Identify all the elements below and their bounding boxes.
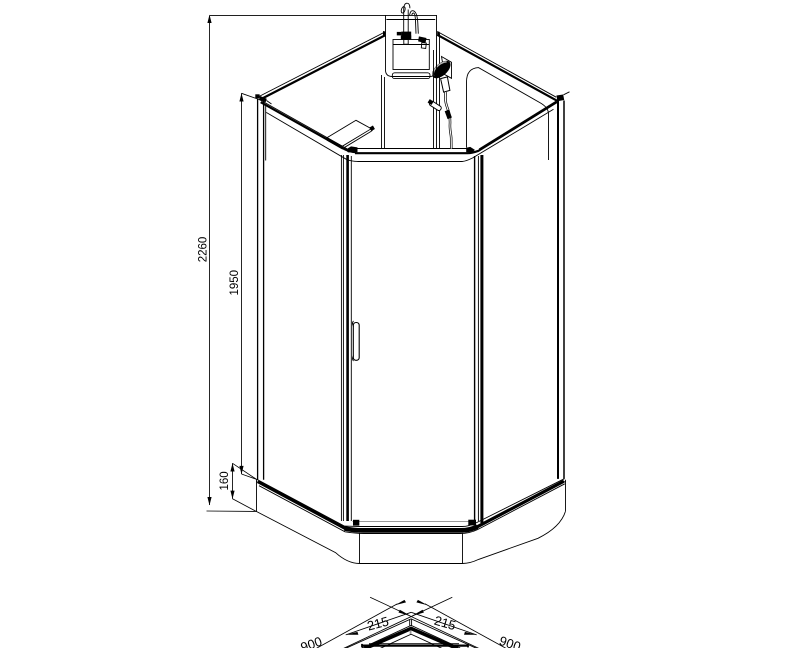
svg-text:160: 160 [219, 471, 231, 490]
svg-text:1950: 1950 [229, 270, 241, 296]
svg-text:2260: 2260 [198, 237, 210, 263]
